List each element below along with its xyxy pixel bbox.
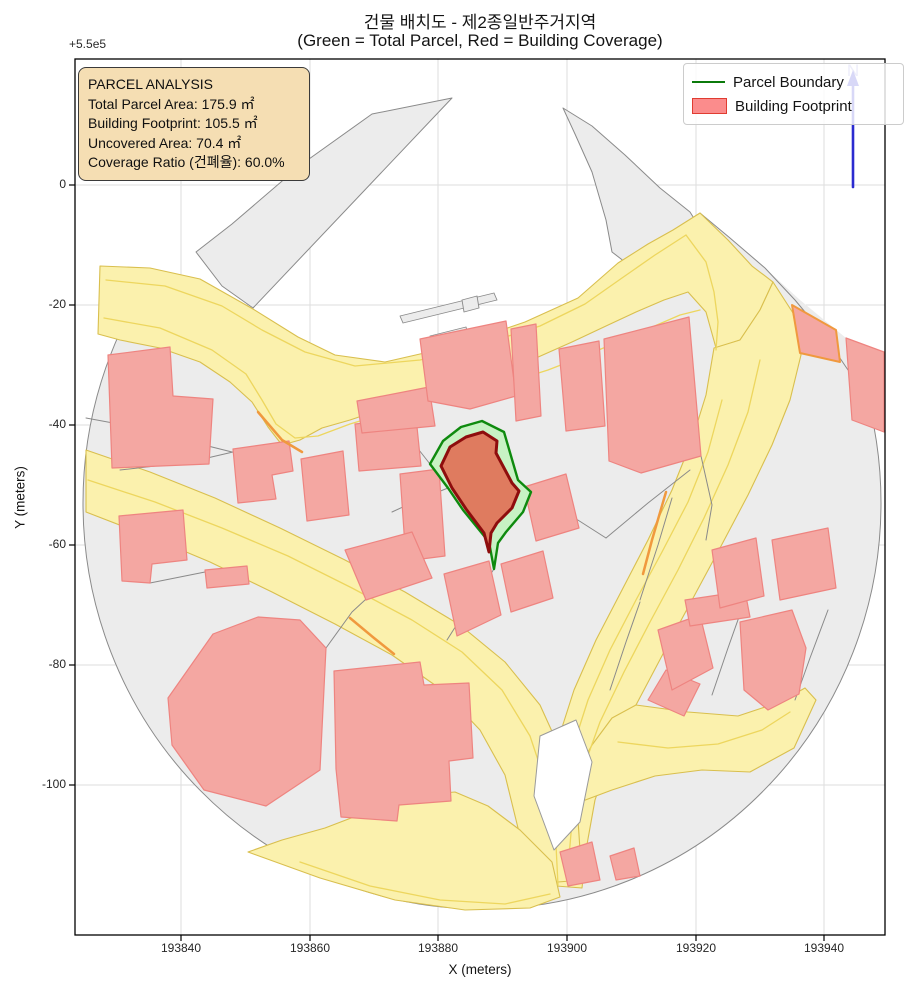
- x-tick-label: 193840: [149, 941, 213, 955]
- building: [712, 538, 764, 608]
- y-tick-label: -40: [18, 417, 66, 431]
- y-tick-label: -100: [18, 777, 66, 791]
- plot-area: N: [75, 59, 885, 935]
- x-tick-label: 193880: [406, 941, 470, 955]
- chart-title-line1: 건물 배치도 - 제2종일반주거지역: [75, 8, 885, 33]
- legend-label: Building Footprint: [735, 98, 852, 115]
- y-tick-label: -80: [18, 657, 66, 671]
- x-tick-label: 193900: [535, 941, 599, 955]
- info-box-line: Total Parcel Area: 175.9 ㎡: [88, 95, 300, 115]
- info-box-line: PARCEL ANALYSIS: [88, 75, 300, 95]
- legend-line-swatch: [692, 81, 725, 83]
- y-tick-label: 0: [18, 177, 66, 191]
- building: [740, 610, 806, 710]
- building: [205, 566, 249, 588]
- x-tick-label: 193920: [664, 941, 728, 955]
- x-tick-label: 193940: [792, 941, 856, 955]
- x-axis-label: X (meters): [75, 962, 885, 977]
- y-axis-offset-label: +5.5e5: [69, 37, 106, 51]
- x-tick-label: 193860: [278, 941, 342, 955]
- info-box-line: Uncovered Area: 70.4 ㎡: [88, 134, 300, 154]
- building: [846, 338, 884, 432]
- legend-item: Parcel Boundary: [692, 70, 895, 94]
- legend-patch-swatch: [692, 98, 727, 114]
- y-tick-label: -20: [18, 297, 66, 311]
- figure-canvas: N 건물 배치도 - 제2종일반주거지역 (Green = Total Parc…: [0, 0, 904, 990]
- y-axis-label: Y (meters): [13, 448, 28, 548]
- building: [772, 528, 836, 600]
- building: [511, 324, 541, 421]
- legend-box: Parcel BoundaryBuilding Footprint: [683, 63, 904, 125]
- chart-title-line2: (Green = Total Parcel, Red = Building Co…: [75, 31, 885, 51]
- info-box-line: Building Footprint: 105.5 ㎡: [88, 114, 300, 134]
- building: [301, 451, 349, 521]
- legend-label: Parcel Boundary: [733, 74, 844, 91]
- y-tick-label: -60: [18, 537, 66, 551]
- building: [559, 341, 605, 431]
- parcel-analysis-info-box: PARCEL ANALYSISTotal Parcel Area: 175.9 …: [78, 67, 310, 181]
- info-box-line: Coverage Ratio (건폐율): 60.0%: [88, 153, 300, 173]
- building: [604, 317, 701, 473]
- legend-item: Building Footprint: [692, 94, 895, 118]
